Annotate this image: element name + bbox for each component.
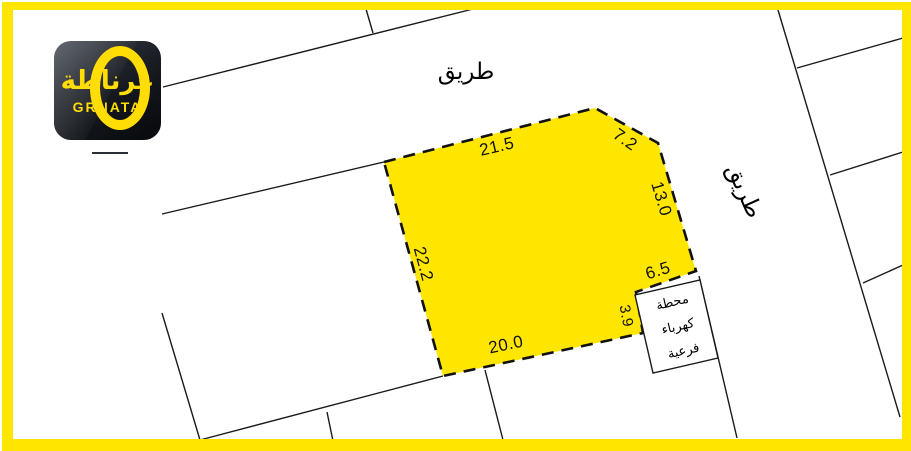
left-upper-boundary-line [162, 162, 384, 214]
left-lower-boundary-line [162, 313, 200, 440]
logo-latin-text: GRNATA [54, 99, 161, 115]
road-top-boundary-line [163, 8, 477, 87]
lower-parcel-divider-line [485, 370, 503, 440]
cadastral-map-canvas: 21.5 7.2 13.0 6.5 3.9 20.0 22.2 طريق طري… [0, 0, 911, 451]
right-parcel-divider-1 [797, 38, 903, 68]
bottom-tick-line [327, 412, 333, 441]
logo-underline-dash [92, 152, 128, 154]
bottom-boundary-line [200, 376, 443, 440]
road-right-boundary-line [778, 10, 900, 417]
right-parcel-divider-3 [863, 265, 903, 283]
right-parcel-divider-2 [830, 152, 903, 175]
road-top-tick-line [366, 9, 373, 33]
grnata-logo: غرناطة GRNATA [54, 41, 161, 140]
road-label-top: طريق [438, 59, 495, 85]
logo-arabic-text: غرناطة [54, 66, 161, 96]
